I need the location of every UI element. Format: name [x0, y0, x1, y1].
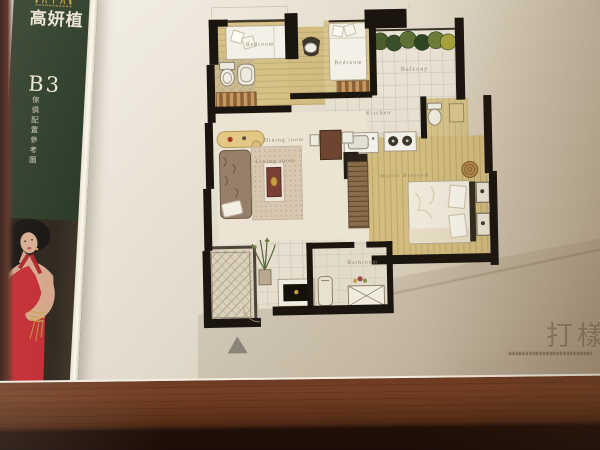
watermark: 打樣 — [546, 314, 600, 353]
brand-spine: 高妍植 B3 傢俱配置參考圖 — [0, 0, 98, 394]
room-label-dining: Dining room — [264, 137, 304, 144]
brand-name: 高妍植 — [29, 3, 92, 31]
room-label-living: Living room — [256, 158, 296, 165]
basket — [462, 161, 478, 177]
fine-print-line — [509, 352, 592, 355]
room-label-master: Master Bedroom — [380, 173, 429, 179]
brochure-photo-scene: Bedroom Bedroom Balcony Kitchen Dining r… — [0, 0, 600, 450]
toilet-top-left — [219, 62, 234, 86]
room-label-bathroom: Bathroom — [347, 259, 378, 266]
room-label-kitchen: Kitchen — [366, 110, 391, 117]
room-label-balcony: Balcony — [401, 66, 429, 73]
unit-code: B3 — [28, 71, 62, 97]
coffee-table — [264, 162, 285, 201]
entrance-marker-icon — [227, 336, 247, 353]
entry-rug — [206, 247, 256, 323]
room-label-bedroom-2: Bedroom — [334, 60, 362, 67]
page-fore-edge — [69, 0, 98, 394]
tub-top-left — [238, 64, 255, 85]
desk-chair — [302, 37, 320, 57]
wardrobe — [347, 154, 369, 228]
floor-plan: Bedroom Bedroom Balcony Kitchen Dining r… — [189, 0, 508, 363]
sofa — [219, 150, 251, 219]
room-label-bedroom-1: Bedroom — [246, 42, 274, 49]
unit-subtitle: 傢俱配置參考圖 — [27, 96, 42, 172]
bed-top-mid — [329, 23, 367, 81]
